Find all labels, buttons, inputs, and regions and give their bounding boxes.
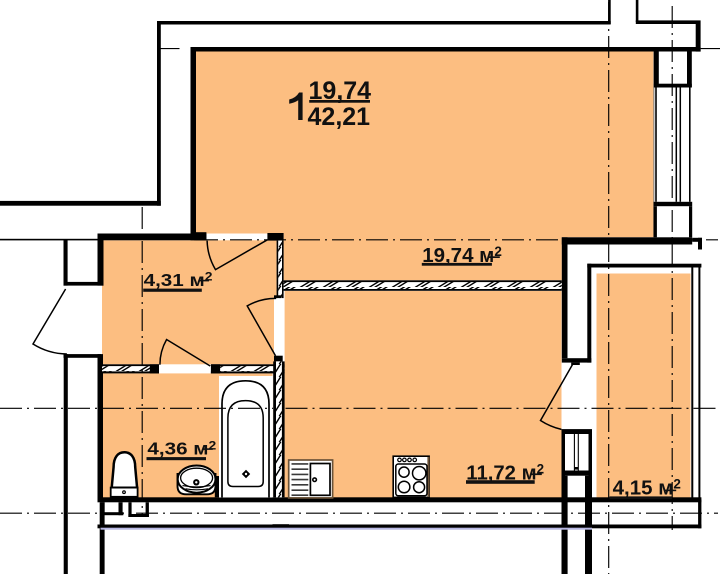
svg-text:4,15 м2: 4,15 м2: [613, 476, 681, 499]
svg-text:42,21: 42,21: [308, 103, 371, 131]
